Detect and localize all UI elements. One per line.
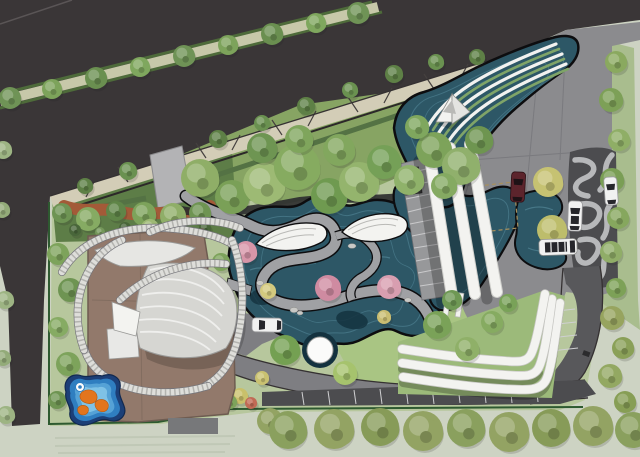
shuttle-bus — [539, 238, 578, 255]
maroon-car — [510, 172, 526, 203]
white-car-drive — [252, 318, 282, 333]
white-car-east — [604, 177, 619, 206]
rear-deck — [168, 418, 218, 434]
round-pond-deck — [302, 332, 338, 368]
white-car-plaza — [567, 201, 582, 231]
site-plan-canvas — [0, 0, 640, 457]
playground — [65, 375, 125, 426]
